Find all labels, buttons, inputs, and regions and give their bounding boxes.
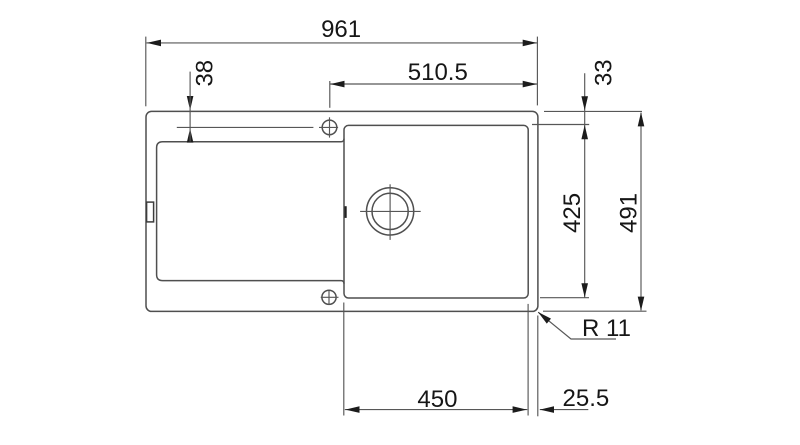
svg-text:961: 961: [321, 16, 361, 43]
svg-text:38: 38: [192, 60, 219, 87]
svg-text:33: 33: [591, 59, 618, 86]
svg-text:25.5: 25.5: [563, 385, 610, 412]
svg-text:510.5: 510.5: [408, 59, 468, 86]
svg-text:425: 425: [559, 193, 586, 233]
svg-text:491: 491: [616, 193, 643, 233]
svg-text:R 11: R 11: [582, 315, 631, 342]
svg-text:450: 450: [417, 386, 457, 413]
